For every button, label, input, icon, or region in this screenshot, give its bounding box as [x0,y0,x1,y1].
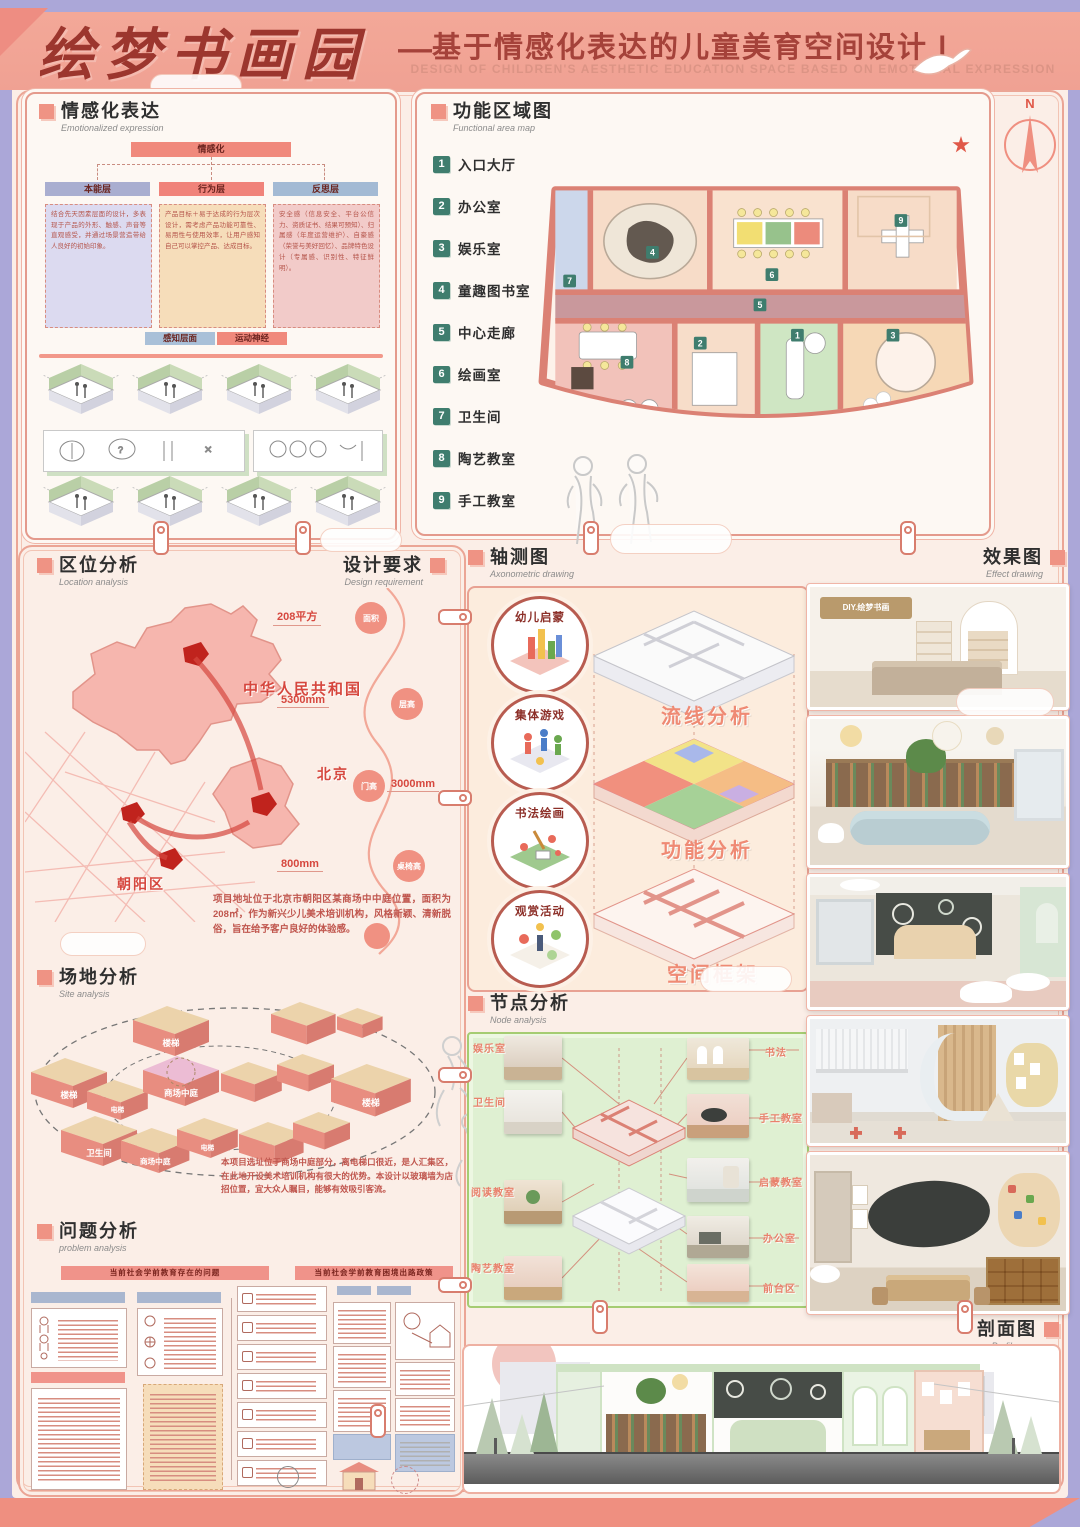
section-subtitle-en: problem analysis [59,1243,139,1253]
problem-item-box [237,1344,327,1370]
panel-profile: 剖面图 Profile map [462,1314,1063,1492]
section-title: 设计要求 [343,556,423,574]
panel-axonometric: 幼儿启蒙 集体游戏 书法绘画 观赏活动 [467,586,809,992]
legend-label: 入口大厅 [458,154,516,174]
node-room-label: 阅读教室 [471,1184,515,1199]
connector-pin [438,1277,472,1293]
isometric-diagram-row [41,364,388,422]
location-map-drawing [25,592,365,922]
svg-text:层高: 层高 [398,699,415,709]
policy-box [395,1362,455,1396]
section-bullet-icon [431,104,446,119]
section-effect-header: 效果图 Effect drawing [900,548,1065,579]
axon-stack-drawing [587,594,801,986]
connector-pin [438,609,472,625]
axon-circle-item: 幼儿启蒙 [491,596,589,694]
section-title: 节点分析 [490,994,570,1012]
section-title: 剖面图 [977,1320,1037,1338]
node-room-label: 卫生间 [473,1094,506,1109]
axon-circle-item: 集体游戏 [491,694,589,792]
axon-label: 功能分析 [661,834,753,863]
svg-text:桌椅高: 桌椅高 [396,861,421,871]
sub-header-bar [377,1286,411,1295]
sub-header-bar [137,1292,221,1303]
section-bullet-icon [468,550,483,565]
map-label-district: 朝阳区 [117,874,165,894]
section-title: 功能区域图 [453,102,553,120]
svg-text:6: 6 [769,270,774,280]
sub-header-bar [31,1372,125,1383]
axon-circle-item: 观赏活动 [491,890,589,988]
policy-box [333,1346,391,1388]
problem-list-box [31,1308,127,1368]
section-bullet-icon [37,558,52,573]
svg-text:卫生间: 卫生间 [86,1148,112,1158]
gear-icon [391,1466,419,1494]
section-subtitle-en: Functional area map [453,123,553,133]
section-bullet-icon [39,104,54,119]
section-subtitle-en: Location analysis [59,577,139,587]
legend-number-tile: 8 [433,450,450,467]
svg-text:4: 4 [650,248,655,258]
flow-layer-bar: 反思层 [273,182,378,196]
connector-pin [370,1404,386,1438]
section-title: 情感化表达 [61,102,164,120]
svg-text:电梯: 电梯 [201,1143,215,1152]
problem-icon-box [137,1308,223,1376]
isometric-cube-drawing [308,476,388,534]
flow-layer-body: 结合先天因素层面的设计，多表现于产品的外形、触感、声音等直观感受，并通过场景营造… [45,204,152,328]
legend-number-tile: 4 [433,282,450,299]
problem-text-box [31,1388,127,1490]
node-photo [687,1094,749,1138]
connector-pin [438,790,472,806]
dove-icon [905,40,975,86]
axon-label: 流线分析 [661,700,753,729]
svg-text:2: 2 [698,338,703,348]
axon-circle-item: 书法绘画 [491,792,589,890]
problem-orange-box [143,1384,223,1490]
legend-label: 中心走廊 [458,322,516,342]
svg-text:门高: 门高 [361,781,377,791]
legend-label: 娱乐室 [458,238,502,258]
connector-pin [438,1067,472,1083]
section-bullet-icon [1050,550,1065,565]
cloud-decoration [956,688,1054,716]
svg-text:5: 5 [758,300,763,310]
isometric-cube-drawing [219,364,299,422]
section-bullet-icon [1044,1322,1059,1337]
flow-layer-body: 产品目标＋易于达成的行为层次设计，需考虑产品功能可靠性、易用性与使用效率，让用户… [159,204,266,328]
cloud-decoration [320,528,402,552]
section-subtitle-en: Design requirement [343,577,423,587]
axon-circle-label: 幼儿启蒙 [494,609,586,625]
legend-label: 陶艺教室 [458,448,516,468]
section-subtitle-en: Node analysis [490,1015,570,1025]
node-photo [504,1090,562,1134]
policy-box [333,1302,391,1344]
effect-photo-blackboard-room [807,1152,1069,1314]
effect-photo-library [807,716,1069,868]
svg-text:✕: ✕ [204,445,212,456]
legend-number-tile: 5 [433,324,450,341]
node-room-label: 书法 [765,1044,787,1059]
legend-number-tile: 3 [433,240,450,257]
svg-text:9: 9 [899,216,904,226]
svg-text:3: 3 [891,330,896,340]
requirement-value: 5300mm [277,694,329,708]
panel-site-analysis: 场地分析 Site analysis 楼梯 楼梯 电梯 商场中庭 楼梯 卫生间 … [25,968,455,1216]
profile-drawing [462,1344,1061,1494]
flow-layer-bar: 本能层 [45,182,150,196]
sub-header-bar [31,1292,125,1303]
isometric-cube-drawing [308,364,388,422]
svg-text:电梯: 电梯 [111,1105,125,1114]
svg-text:商场中庭: 商场中庭 [140,1156,171,1166]
problem-item-box [237,1402,327,1428]
node-room-label: 陶艺教室 [471,1260,515,1275]
problem-item-box [237,1431,327,1457]
section-subtitle-en: Emotionalized expression [61,123,164,133]
divider-rule [39,354,383,358]
legend-label: 办公室 [458,196,502,216]
legend-number-tile: 7 [433,408,450,425]
requirement-value: 800mm [277,858,323,872]
isometric-diagram-row [41,476,388,534]
footer-band [0,1498,1080,1527]
flow-layer-body: 安全感（信息安全、平台公信力、资质证书、结果可预知）、归属感（年度运营维护）、自… [273,204,380,328]
node-photo [687,1216,749,1258]
svg-text:楼梯: 楼梯 [60,1090,78,1100]
section-title: 区位分析 [59,556,139,574]
legend-label: 童趣图书室 [458,280,531,300]
legend-number-tile: 2 [433,198,450,215]
axon-circle-label: 观赏活动 [494,903,586,919]
policy-box [395,1302,455,1360]
compass-north-label: N [1002,96,1058,111]
node-room-label: 启蒙教室 [759,1174,803,1189]
connector-pin [957,1300,973,1334]
cloud-decoration [700,966,792,992]
cloud-decoration [60,932,146,956]
svg-text:8: 8 [625,357,630,367]
effect-photo-slide-room [807,1016,1069,1146]
section-subtitle-en: Effect drawing [983,569,1043,579]
legend-number-tile: 9 [433,492,450,509]
isometric-cube-drawing [41,476,121,534]
problem-right-header: 当前社会学前教育困境出路政策 [295,1266,453,1280]
poster-title-main: 基于情感化表达的儿童美育空间设计 Ⅰ [432,24,949,66]
location-description: 项目地址位于北京市朝阳区某商场中中庭位置，面积为208㎡，作为新兴少儿美术培训机… [213,892,451,938]
sub-header-bar [337,1286,371,1295]
sketch-strip [253,430,383,472]
clock-icon [277,1466,299,1488]
axon-circle-label: 书法绘画 [494,805,586,821]
section-subtitle-en: Site analysis [59,989,139,999]
connector-pin [153,521,169,555]
section-title: 问题分析 [59,1222,139,1240]
diy-signboard: DIY.绘梦书画 [820,597,912,619]
policy-summary-box [333,1434,391,1460]
isometric-cube-drawing [219,476,299,534]
sketch-strip: ? ✕ [43,430,245,472]
cloud-decoration [610,524,732,554]
isometric-cube-drawing [41,364,121,422]
svg-text:7: 7 [567,276,572,286]
svg-text:1: 1 [795,330,800,340]
svg-text:楼梯: 楼梯 [362,1097,380,1108]
legend-number-tile: 6 [433,366,450,383]
svg-text:面积: 面积 [363,613,379,623]
section-title: 轴测图 [490,548,574,566]
flow-bottom-bar: 运动神经 [217,332,287,345]
section-bullet-icon [37,970,52,985]
section-axonometric-header: 轴测图 Axonometric drawing [468,548,574,579]
node-room-label: 娱乐室 [473,1040,506,1055]
section-node-header: 节点分析 Node analysis [468,994,570,1025]
flow-bottom-bar: 感知层面 [145,332,215,345]
flow-top-bar: 情感化 [131,142,291,157]
svg-text:商场中庭: 商场中庭 [164,1088,199,1098]
legend-label: 手工教室 [458,490,516,510]
tree-icon [1020,1416,1042,1454]
node-photo [687,1038,749,1080]
panel-emotional-expression: 情感化表达 Emotionalized expression 情感化 本能层 行… [25,92,397,540]
compass-icon: N [1002,96,1058,188]
axon-circle-label: 集体游戏 [494,707,586,723]
panel-location-analysis: 区位分析 Location analysis 设计要求 Design requi… [25,552,455,962]
panel-functional-area-map: 功能区域图 Functional area map 1入口大厅 2办公室 3娱乐… [415,92,991,536]
isometric-cube-drawing [130,364,210,422]
node-center-axon [567,1080,691,1264]
requirement-value: 3000mm [387,778,439,792]
problem-left-header: 当前社会学前教育存在的问题 [61,1266,269,1280]
node-photo [504,1036,562,1080]
legend-label: 卫生间 [458,406,502,426]
requirement-value: 208平方 [273,608,321,626]
node-room-label: 手工教室 [759,1110,803,1125]
legend-label: 绘画室 [458,364,502,384]
node-room-label: 前台区 [763,1280,796,1295]
problem-item-box [237,1373,327,1399]
effect-photo-chalk-classroom [807,874,1069,1010]
svg-text:?: ? [118,445,123,455]
section-bullet-icon [430,558,445,573]
connector-pin [583,521,599,555]
legend-number-tile: 1 [433,156,450,173]
node-photo [687,1158,749,1202]
section-title: 场地分析 [59,968,139,986]
flow-layer-bar: 行为层 [159,182,264,196]
problem-item-box [237,1315,327,1341]
section-bullet-icon [37,1224,52,1239]
svg-text:楼梯: 楼梯 [162,1038,180,1048]
problem-item-box [237,1286,327,1312]
school-building-icon [333,1462,385,1492]
panel-node-analysis: 娱乐室 卫生间 阅读教室 陶艺教室 书法 手工教室 启蒙教室 办公室 前台区 [467,1032,809,1308]
panel-problem-analysis: 问题分析 problem analysis 当前社会学前教育存在的问题 当前社会… [25,1222,455,1498]
section-bullet-icon [468,996,483,1011]
node-photo [687,1264,749,1302]
connector-pin [295,521,311,555]
section-title: 效果图 [983,548,1043,566]
site-blocks-drawing: 楼梯 楼梯 电梯 商场中庭 楼梯 卫生间 商场中庭 电梯 [25,1000,455,1178]
section-subtitle-en: Axonometric drawing [490,569,574,579]
policy-box [395,1398,455,1432]
connector-pin [900,521,916,555]
isometric-cube-drawing [130,476,210,534]
node-room-label: 办公室 [763,1230,796,1245]
connector-pin [592,1300,608,1334]
